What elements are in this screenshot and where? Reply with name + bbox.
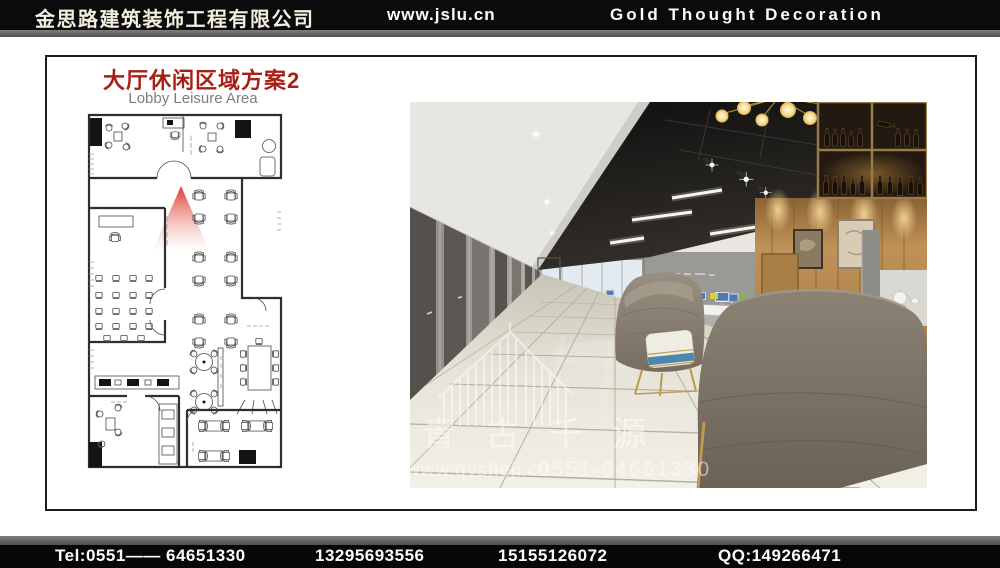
- top-reception-room: [104, 115, 275, 178]
- classroom-chair-grid: [96, 275, 152, 341]
- presentation-board: 金思路建筑装饰工程有限公司 www.jslu.cn Gold Thought D…: [0, 0, 1000, 568]
- company-name-en: Gold Thought Decoration: [610, 5, 884, 25]
- website-url: www.jslu.cn: [387, 5, 496, 25]
- content-frame: 大厅休闲区域方案2 Lobby Leisure Area: [45, 55, 977, 511]
- office-chair-pairs: [193, 190, 237, 348]
- round-leisure-tables: [189, 348, 223, 415]
- wine-rack: [818, 102, 927, 198]
- throw-pillow: [645, 330, 694, 369]
- projection-symbol: [237, 400, 277, 414]
- company-name-cn: 金思路建筑装饰工程有限公司: [35, 3, 315, 32]
- divider-strip-top: [0, 30, 1000, 37]
- outer-walls: [89, 115, 281, 467]
- training-room: [89, 208, 165, 342]
- window-hatch-marks: [89, 154, 281, 368]
- footer-qq: QQ:149266471: [718, 546, 841, 566]
- watermark-brand-text: 青 古 千 源: [422, 416, 656, 454]
- conference-room: [237, 298, 279, 414]
- watermark-phone-text: 0551-64651330: [538, 458, 711, 481]
- camera-view-cone: [153, 186, 209, 250]
- top-header-bar: 金思路建筑装饰工程有限公司 www.jslu.cn Gold Thought D…: [0, 0, 1000, 30]
- page-subtitle: Lobby Leisure Area: [113, 90, 273, 107]
- watermark-url-text: www.qysheji.cn: [410, 460, 550, 481]
- footer-mobile-2: 15155126072: [498, 546, 608, 566]
- lounge-sofa-room: [89, 376, 179, 467]
- floor-plan-drawing: [87, 112, 285, 470]
- footer-contact-bar: Tel:0551—— 64651330 13295693556 15155126…: [0, 545, 1000, 568]
- footer-tel: Tel:0551—— 64651330: [55, 546, 246, 566]
- lounge-chair-foreground: [698, 290, 927, 488]
- entry-door-arcs: [157, 161, 191, 178]
- interior-render-photo: 青 古 千 源 www.qysheji.cn 0551-64651330: [410, 102, 927, 488]
- footer-mobile-1: 13295693556: [315, 546, 425, 566]
- office-room: [187, 410, 281, 467]
- divider-strip-bottom: [0, 536, 1000, 545]
